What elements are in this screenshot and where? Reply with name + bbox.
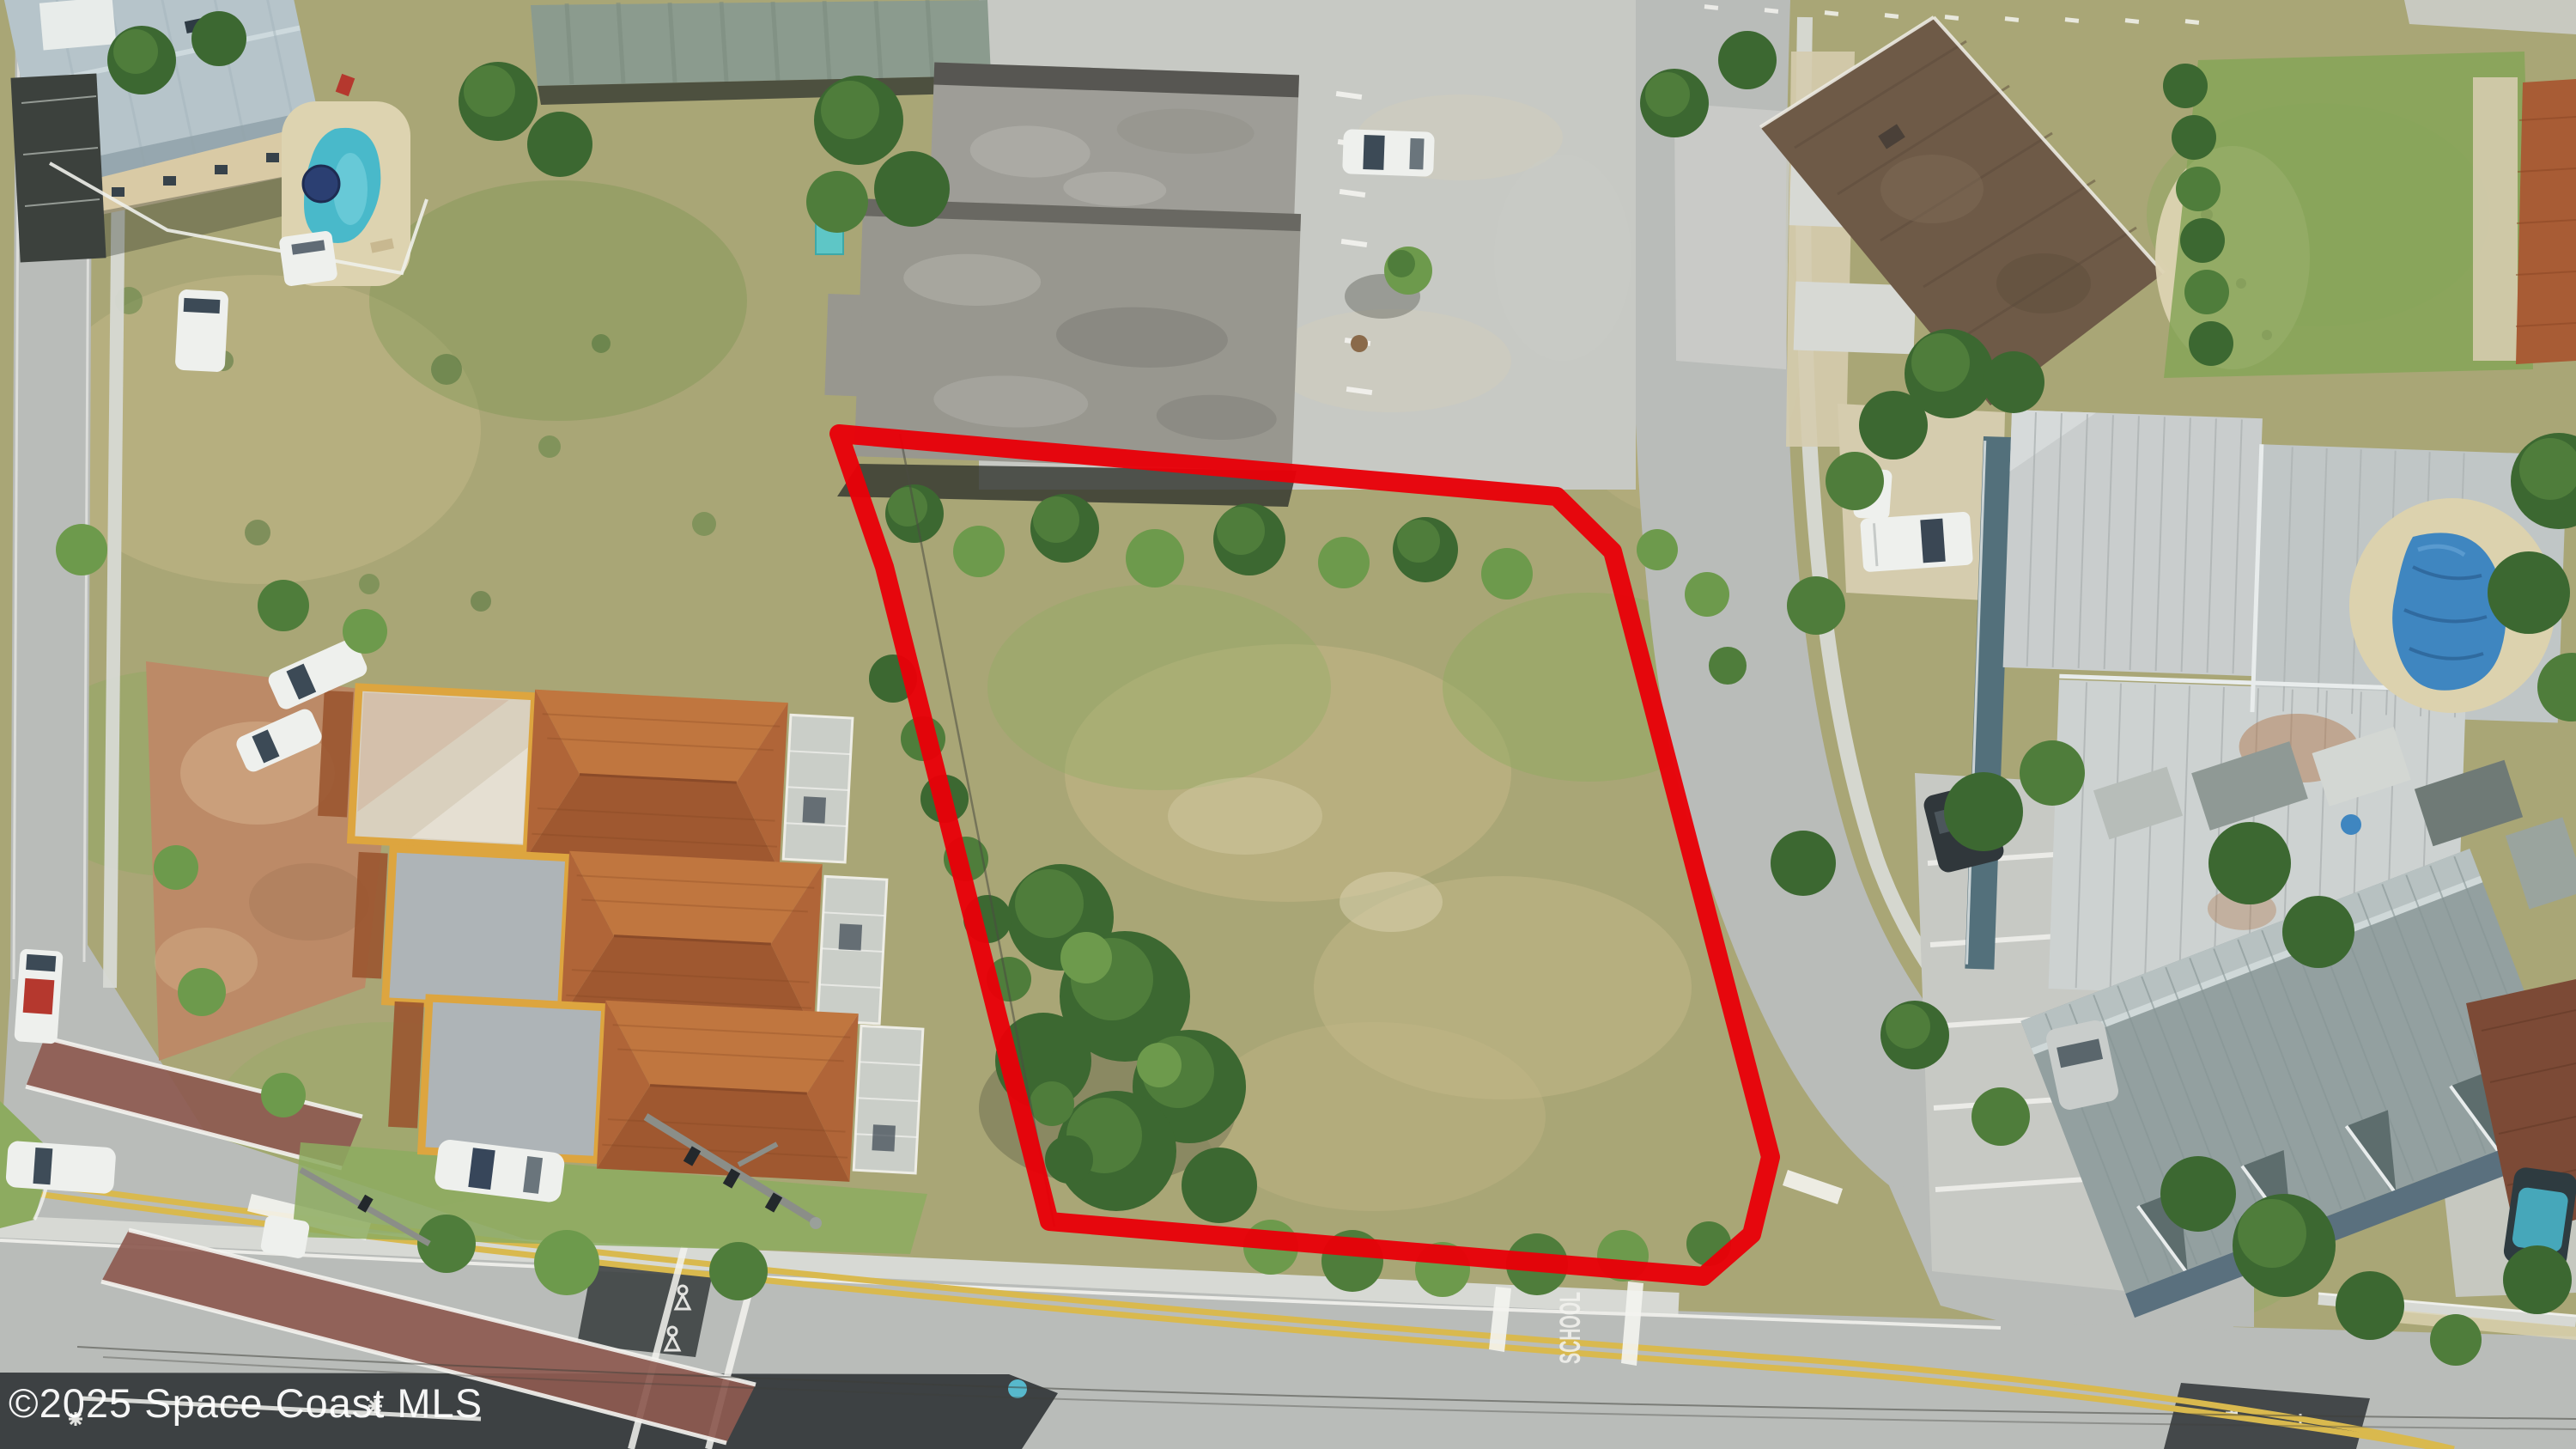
- car-white-corner-small: [260, 1215, 311, 1259]
- boat-trailer: [39, 0, 116, 51]
- patio-umbrella: [303, 166, 339, 202]
- corrugated-metal-building: [531, 0, 994, 105]
- crosswalk-asphalt-patch: [577, 1263, 713, 1357]
- aerial-photo: SCHOOL: [0, 0, 2576, 1449]
- blue-barrel: [1008, 1379, 1027, 1398]
- car-white-parking-lot: [1342, 129, 1435, 177]
- brown-house-driveway: [1674, 103, 1790, 369]
- watermark-text: ©2025 Space Coast MLS: [9, 1380, 483, 1426]
- car-white-by-fence: [278, 230, 337, 287]
- car-white-side-street: [5, 1141, 116, 1195]
- school-zone-marking: SCHOOL: [1554, 1292, 1587, 1364]
- aerial-photo-canvas: SCHOOL: [0, 0, 2576, 1449]
- truck-white-silver-house: [1860, 511, 1973, 572]
- van-white-left-street: [175, 289, 229, 373]
- tile-roof-complex: [292, 679, 927, 1254]
- truck-red-cargo: [14, 948, 63, 1044]
